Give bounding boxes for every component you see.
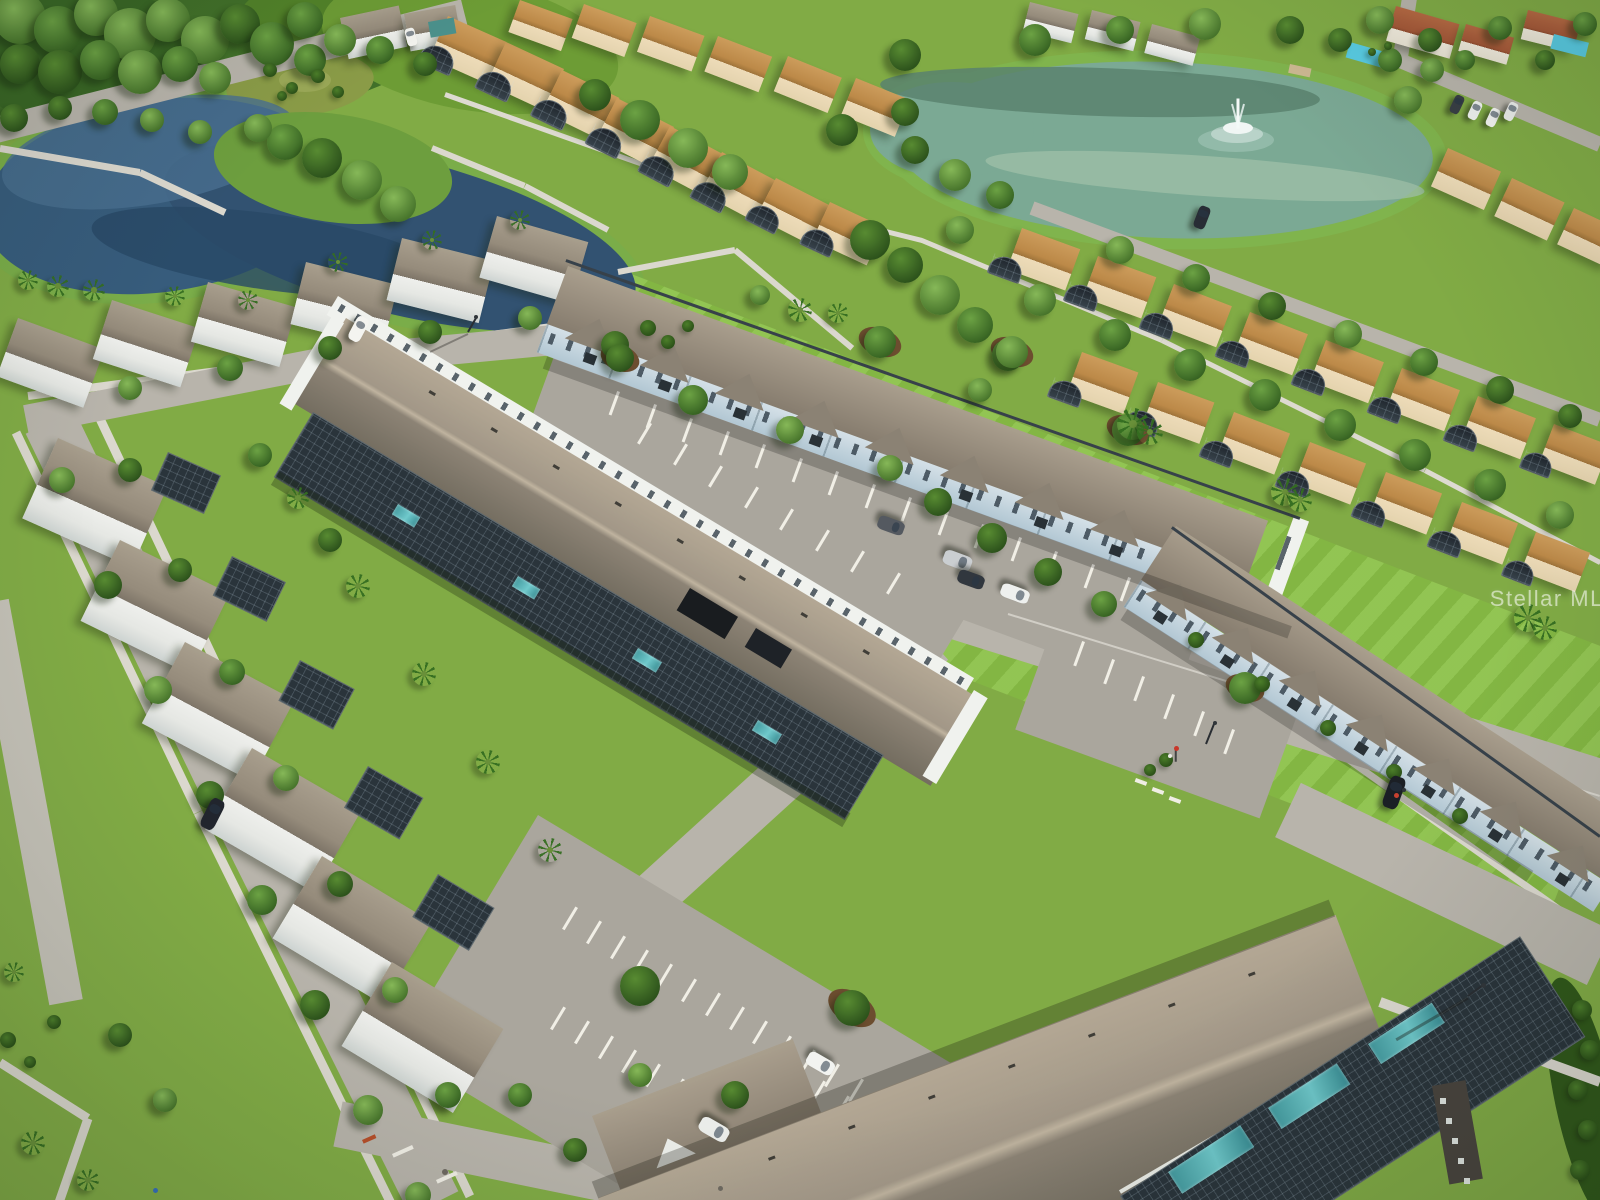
tree [1276,16,1304,44]
tree [118,50,162,94]
shrub [1188,632,1204,648]
house [1494,178,1564,241]
tree [750,285,770,305]
tree [563,1138,587,1162]
shrub [1568,1080,1588,1100]
tree [1420,58,1444,82]
shrub [277,91,287,101]
tree [92,99,118,125]
palm-tree [165,286,185,306]
shrub [1572,1000,1592,1020]
tree [342,160,382,200]
palm-tree [788,298,812,322]
tree [712,154,748,190]
tree [250,22,294,66]
tree [721,1081,749,1109]
tree [0,44,40,84]
tree [668,128,708,168]
tree [1174,349,1206,381]
tree [1546,501,1574,529]
m3-ac-dots [1452,1138,1458,1144]
tree [244,114,272,142]
tree [1324,409,1356,441]
tree [889,39,921,71]
tree [267,124,303,160]
car [1448,94,1465,115]
palm-tree [1533,616,1557,640]
road [0,599,83,1005]
tree [620,966,660,1006]
tree [628,1063,652,1087]
tree [1019,24,1051,56]
tree [1366,6,1394,34]
tree [118,376,142,400]
clubhouse-pool [1550,34,1589,57]
small-object [718,1186,723,1191]
shrub [1254,676,1270,692]
m3-ac-dots [1464,1178,1470,1184]
tree [0,104,28,132]
car [1484,107,1501,128]
shrub [1578,1120,1598,1140]
tree [153,1088,177,1112]
house [774,56,842,113]
house [1557,208,1600,268]
tree [946,216,974,244]
tree [1486,376,1514,404]
shrub [263,63,277,77]
tree [1182,264,1210,292]
car [1466,100,1483,121]
lot-markings [1152,787,1164,794]
tree [382,977,408,1003]
tree [413,52,437,76]
aerial-photo: Stellar MLS [0,0,1600,1200]
tree [620,100,660,140]
palm-tree [828,303,848,323]
pool-cage [344,766,423,840]
tree [118,458,142,482]
tree [957,307,993,343]
tree [1099,319,1131,351]
palm-tree [287,487,309,509]
pole [1175,750,1177,762]
tree [168,558,192,582]
tree [776,416,804,444]
shrub [1320,720,1336,736]
tree [1258,292,1286,320]
tree [273,765,299,791]
palm-tree [346,574,370,598]
small-object [1168,754,1172,758]
shrub [1452,808,1468,824]
shrub [1570,1160,1590,1180]
house [704,36,772,92]
tree [300,990,330,1020]
tree [1488,16,1512,40]
tree [162,46,198,82]
tree [1399,439,1431,471]
tree [1410,348,1438,376]
tree [318,528,342,552]
palm-tree [538,838,562,862]
tree [48,96,72,120]
palm-tree [47,275,69,297]
footpath [0,1058,90,1122]
shrub [286,82,298,94]
tree [199,62,231,94]
shrub [1580,1040,1600,1060]
tree [108,1023,132,1047]
shrub [0,1032,16,1048]
tree [1378,48,1402,72]
shrub [47,1015,61,1029]
tree [1558,404,1582,428]
tree [901,136,929,164]
tree [968,378,992,402]
lot-markings [1135,778,1147,785]
tree [318,336,342,360]
tree [327,871,353,897]
tree [864,326,896,358]
tree [977,523,1007,553]
palm-tree [510,210,530,230]
tree [606,344,634,372]
tree [678,385,708,415]
tree [247,885,277,915]
m3-ac-dots [1446,1118,1452,1124]
palm-tree [412,662,436,686]
tree [986,181,1014,209]
watermark: Stellar MLS [1490,586,1600,612]
palm-tree [21,1131,45,1155]
tree [366,36,394,64]
tree [287,2,323,38]
tree [94,571,122,599]
tree [1328,28,1352,52]
tree [302,138,342,178]
tree [1474,469,1506,501]
tree [1535,50,1555,70]
tree [248,443,272,467]
palm-tree [83,279,105,301]
tree [1455,50,1475,70]
house [93,300,200,387]
tree [140,108,164,132]
lot-markings [1169,796,1181,803]
house [637,16,704,72]
shrub [24,1056,36,1068]
tree [826,114,858,146]
small-object [1394,793,1399,798]
tree [1106,16,1134,44]
tree [324,24,356,56]
tree [924,488,952,516]
tree [353,1095,383,1125]
tree [188,120,212,144]
palm-tree [77,1169,99,1191]
pool-cage [213,556,286,622]
tree [1334,320,1362,348]
palm-tree [422,230,442,250]
shrub [332,86,344,98]
small-object [153,1188,158,1193]
tree [996,336,1028,368]
small-object [1213,721,1217,725]
shrub [1144,764,1156,776]
small-object [1402,788,1406,792]
tree [877,455,903,481]
shrub [682,320,694,332]
pool-cage [151,452,221,514]
tree [144,676,172,704]
tree [1189,8,1221,40]
small-object [1481,983,1486,988]
palm-tree [1288,488,1312,512]
tree [49,467,75,493]
tree [518,306,542,330]
shrub [311,69,325,83]
tree [508,1083,532,1107]
tree [418,320,442,344]
tree [920,275,960,315]
m3-ac-dots [1458,1158,1464,1164]
tree [834,990,870,1026]
palm-tree [328,252,348,272]
small-object [1174,746,1179,751]
tree [217,355,243,381]
palm-tree [476,750,500,774]
shrub [661,335,675,349]
tree [887,247,923,283]
tree [1418,28,1442,52]
tree [435,1082,461,1108]
tree [1024,284,1056,316]
m3-ac-dots [1440,1098,1446,1104]
tree [380,186,416,222]
shrub [640,320,656,336]
tree [850,220,890,260]
palm-tree [238,290,258,310]
tree [1573,12,1597,36]
pool-cage [278,660,354,730]
small-object [474,315,478,319]
tree [1091,591,1117,617]
shrub [1384,42,1392,50]
tree [1249,379,1281,411]
tree [80,40,120,80]
palm-tree [1137,419,1163,445]
shrub [1368,48,1376,56]
tree [1106,236,1134,264]
tree [579,79,611,111]
tree [939,159,971,191]
small-object [442,1169,448,1175]
tree [1394,86,1422,114]
tree [1034,558,1062,586]
palm-tree [4,962,24,982]
tree [891,98,919,126]
tree [219,659,245,685]
palm-tree [18,270,38,290]
tree [38,50,82,94]
